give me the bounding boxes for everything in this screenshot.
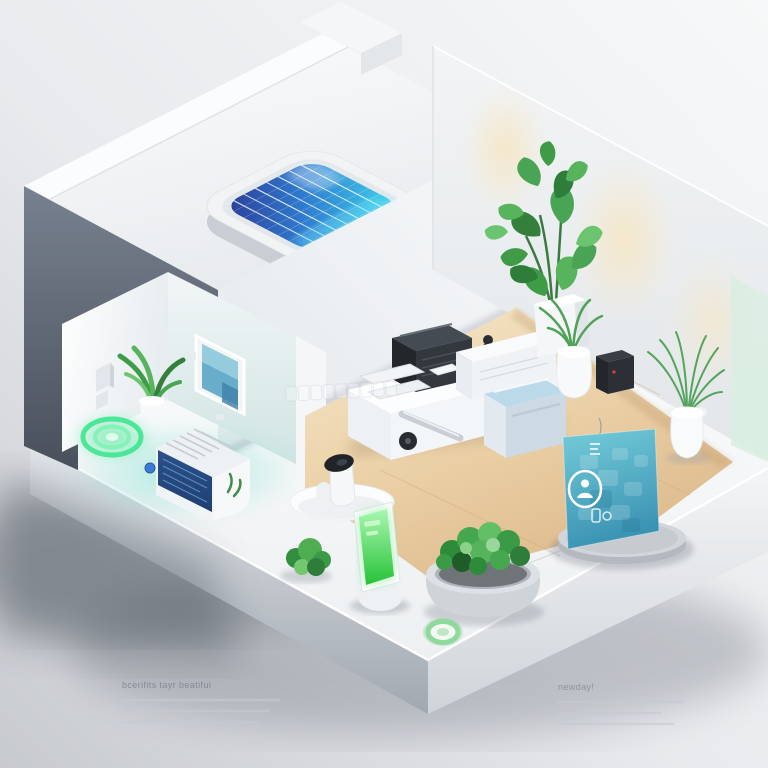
smart-home-isometric-render xyxy=(0,0,768,768)
downlight-glow xyxy=(463,86,547,214)
smart-info-card-panel xyxy=(563,418,659,549)
illustration-stage: bcerifits tayr beatiful newday! xyxy=(0,0,768,768)
green-ring-badge xyxy=(423,618,463,646)
right-wall-mint-side xyxy=(731,276,768,462)
black-coffee-machine xyxy=(596,350,634,394)
heater-knob xyxy=(145,463,155,473)
green-charging-rings xyxy=(68,410,156,464)
